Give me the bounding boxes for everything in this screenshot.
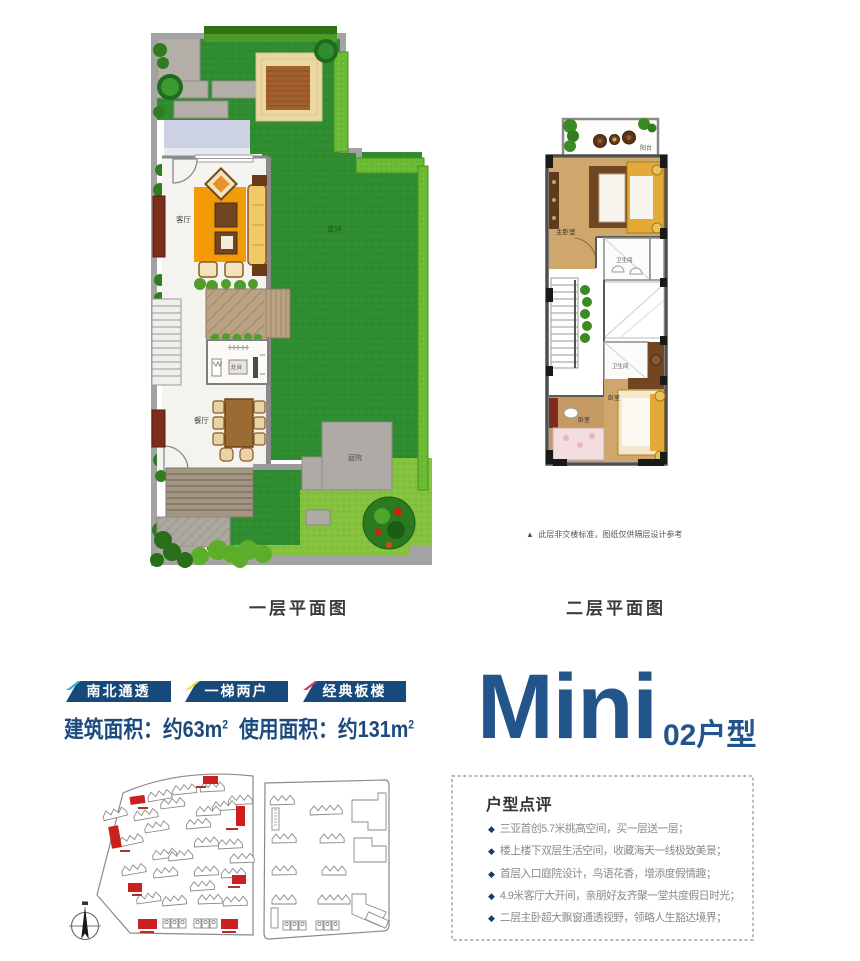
svg-text:卧室: 卧室 (578, 416, 590, 424)
svg-text:主卧室: 主卧室 (556, 227, 576, 236)
svg-text:卫生间: 卫生间 (616, 256, 633, 264)
svg-text:阳台: 阳台 (640, 144, 652, 152)
svg-text:卫生间: 卫生间 (612, 362, 629, 370)
svg-text:卧室: 卧室 (608, 394, 620, 402)
svg-text:餐厅: 餐厅 (194, 416, 209, 425)
svg-text:客厅: 客厅 (176, 214, 191, 224)
svg-text:灶台: 灶台 (231, 363, 243, 371)
svg-text:草坪: 草坪 (327, 224, 342, 234)
svg-text:庭院: 庭院 (348, 453, 362, 462)
